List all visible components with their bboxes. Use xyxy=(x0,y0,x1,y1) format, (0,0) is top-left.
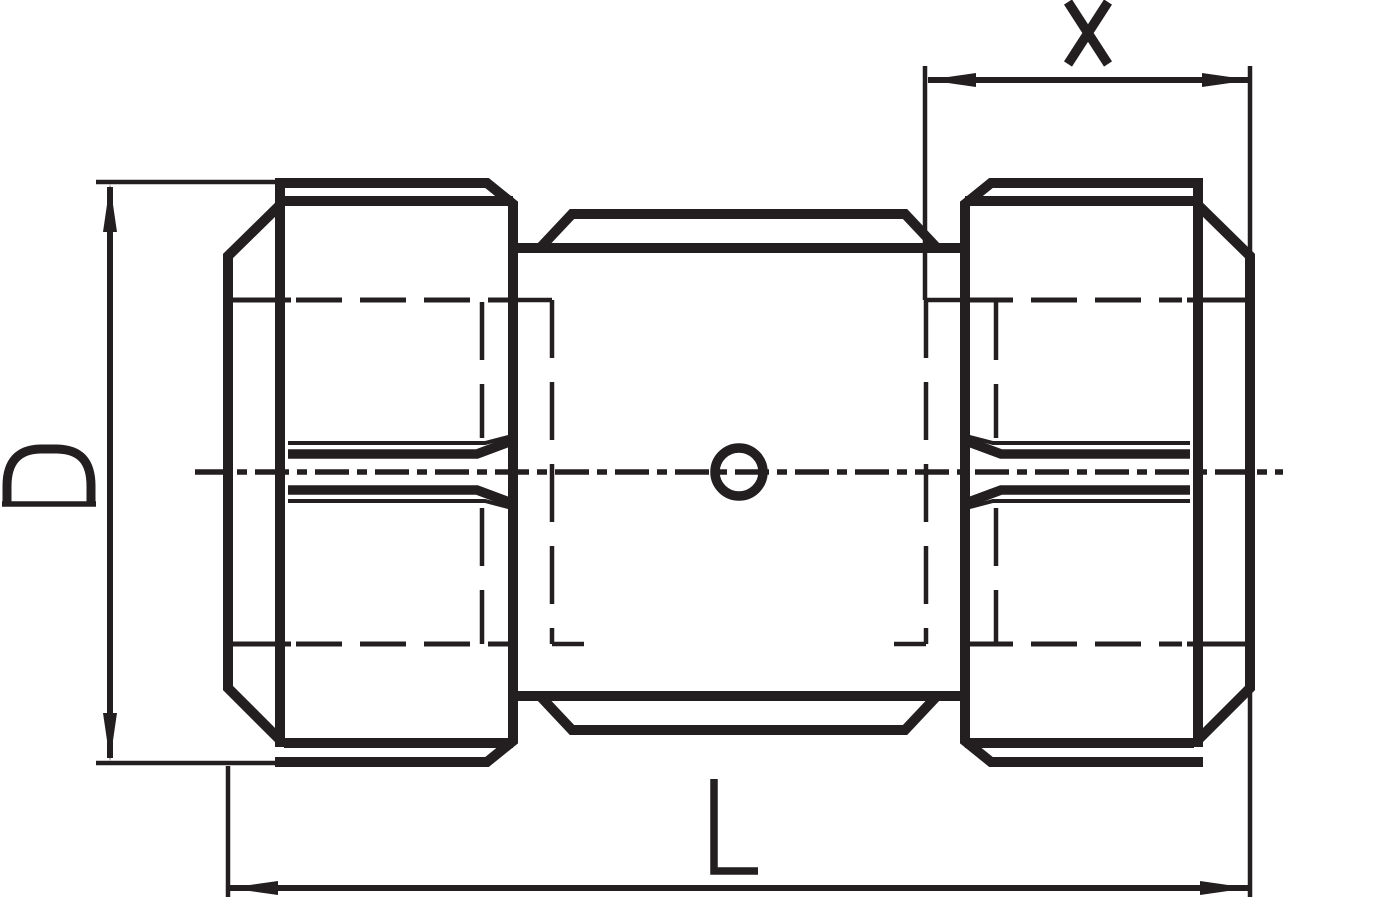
dim-label-x xyxy=(1068,2,1108,64)
dim-l-arrow-right xyxy=(1200,881,1249,895)
dim-x-arrow-left xyxy=(927,73,976,87)
dim-label-x-strokes xyxy=(1068,2,1108,64)
dimension-l: L xyxy=(228,66,1250,897)
dim-d-arrow-down xyxy=(103,713,117,761)
dim-l-arrow-left xyxy=(229,881,278,895)
technical-drawing-canvas: D L X xyxy=(0,0,1400,900)
dim-label-l-strokes xyxy=(714,779,758,871)
dim-label-d-bowl xyxy=(7,449,91,504)
dim-label-d xyxy=(2,449,96,504)
body-bottom-chamfered-edge xyxy=(540,696,937,730)
body-top-chamfered-edge xyxy=(540,214,937,248)
dim-d-arrow-up xyxy=(103,184,117,232)
coupling-drawing: D L X xyxy=(0,0,1400,900)
dim-x-arrow-right xyxy=(1202,73,1251,87)
dim-label-l xyxy=(714,779,758,871)
